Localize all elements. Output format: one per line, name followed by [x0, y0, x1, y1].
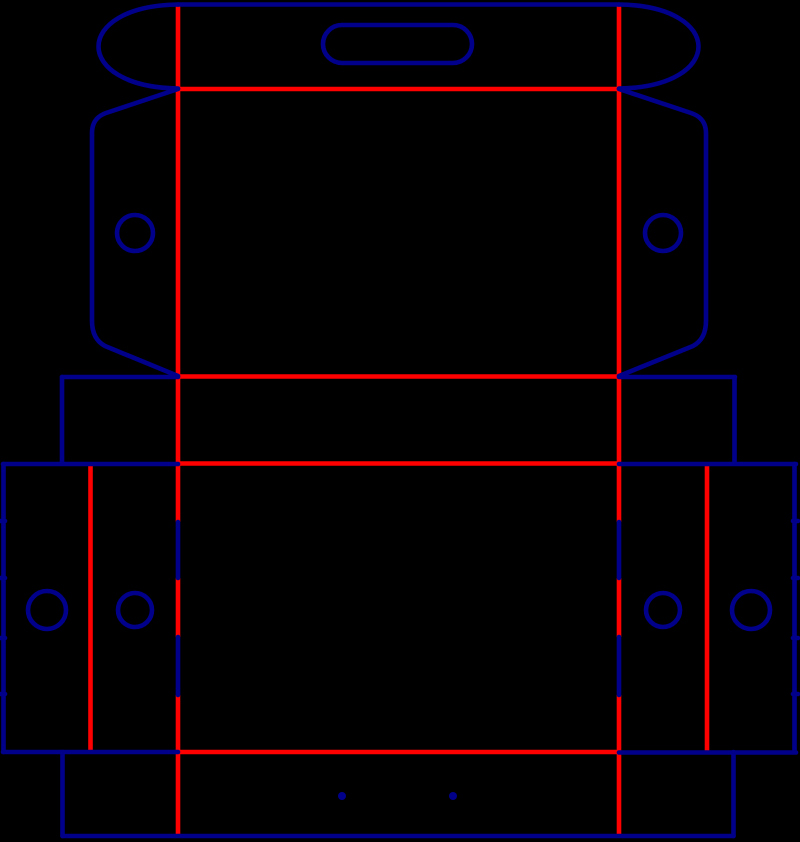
- side-hole-outer-right: [732, 591, 770, 629]
- side-hole-outer-left: [28, 591, 66, 629]
- side-hole-inner-left: [118, 593, 152, 627]
- left-side-ear-cut: [92, 89, 178, 376]
- bottom-dot-right: [449, 792, 457, 800]
- dieline-stage: [0, 0, 800, 842]
- side-hole-inner-right: [646, 593, 680, 627]
- box-dieline-drawing: [0, 0, 800, 842]
- bottom-dot-left: [338, 792, 346, 800]
- top-left-ear-cut: [99, 5, 179, 89]
- ear-hole-right: [645, 215, 681, 251]
- glue-flap-right-edge-cut: [793, 464, 798, 752]
- glue-flap-left-edge-cut: [0, 464, 5, 752]
- ear-hole-left: [117, 215, 153, 251]
- right-side-ear-cut: [619, 89, 706, 376]
- handle-slot-cut: [323, 25, 472, 63]
- top-right-ear-cut: [619, 5, 699, 89]
